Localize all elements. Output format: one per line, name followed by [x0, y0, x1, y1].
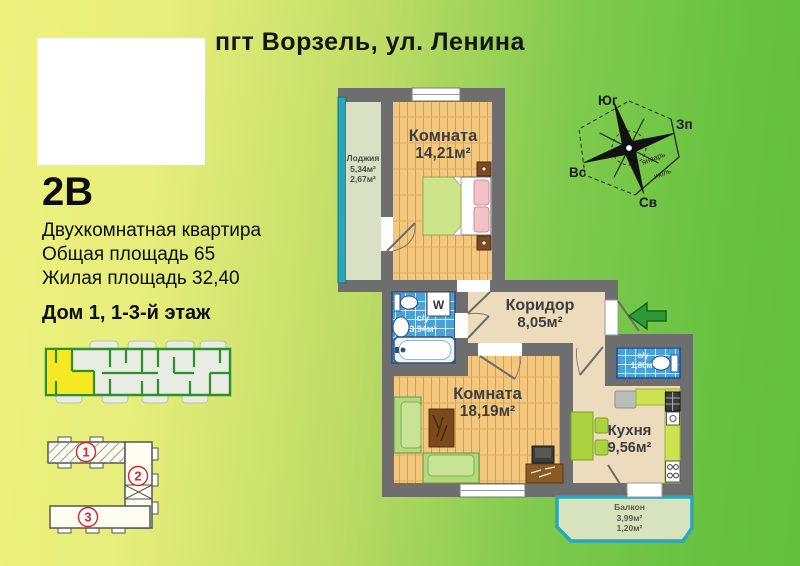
kitchen-label: Кухня 9,56м²	[587, 423, 672, 456]
living-area-label: 18,19м²	[435, 403, 540, 420]
building-3	[50, 506, 150, 533]
sofa-bottom-icon	[423, 453, 479, 483]
total-area: Общая площадь 65	[42, 244, 342, 266]
loggia-area1: 5,34м²	[343, 164, 383, 175]
site-plan: 1 2 3	[42, 430, 167, 560]
tv-icon	[532, 446, 554, 463]
living-label: Комната 18,19м²	[435, 385, 540, 421]
bedroom-label: Комната 14,21м²	[393, 127, 493, 163]
bathroom-area: 3,94м²	[395, 324, 451, 335]
bedroom-name: Комната	[393, 127, 493, 145]
loggia-floor	[346, 102, 381, 280]
bedroom-door-opening	[457, 280, 490, 292]
floor-plan: W	[335, 85, 700, 550]
balcony-area2: 1,20м²	[587, 523, 672, 534]
house-floor-label: Дом 1, 1-3-й этаж	[42, 302, 210, 325]
corridor-name: Коридор	[485, 297, 595, 315]
bedroom-area: 14,21м²	[393, 145, 493, 162]
bathroom-door-opening	[455, 313, 468, 338]
building-strip-schematic	[42, 333, 234, 411]
bathtub-icon	[394, 337, 455, 363]
wc-area: 1,80м²	[619, 361, 667, 371]
building-2-number: 2	[134, 469, 141, 484]
balcony-label: Балкон 3,99м² 1,20м²	[587, 502, 672, 534]
living-area: Жилая площадь 32,40	[42, 268, 342, 290]
balcony-area1: 3,99м²	[587, 513, 672, 524]
kitchen-area: 9,56м²	[587, 440, 672, 456]
building-1-number: 1	[82, 445, 89, 460]
loggia-area2: 2,67м²	[343, 174, 383, 185]
loggia-name: Лоджия	[343, 153, 383, 164]
living-name: Комната	[435, 385, 540, 403]
bathroom-label: с/у 3,94м²	[395, 313, 451, 335]
sofa-left-icon	[394, 397, 421, 453]
entrance-door-opening	[605, 300, 618, 335]
living-door-opening	[478, 343, 522, 356]
apartment-type: Двухкомнатная квартира	[42, 220, 342, 242]
loggia-glazing	[338, 97, 346, 283]
stove-icon	[666, 461, 681, 482]
balcony-door-opening	[627, 483, 662, 497]
loggia-label: Лоджия 5,34м² 2,67м²	[343, 153, 383, 185]
corridor-label: Коридор 8,05м²	[485, 297, 595, 332]
logo-box	[37, 38, 205, 165]
toilet-icon	[394, 294, 400, 311]
cabinet-icon	[615, 391, 636, 408]
tv-stand-icon	[526, 464, 563, 483]
fridge-icon	[666, 392, 681, 411]
wc-label: с/у 1,80м²	[619, 351, 667, 370]
kitchen-name: Кухня	[587, 423, 672, 440]
corridor-area: 8,05м²	[485, 315, 595, 332]
apartment-code: 2В	[42, 170, 93, 215]
washer-label: W	[433, 298, 445, 312]
building-3-number: 3	[84, 510, 91, 525]
flyer-page: { "header": { "title": "пгт Ворзель, ул.…	[0, 0, 800, 566]
wc-name: с/у	[619, 351, 667, 361]
bathroom-name: с/у	[395, 313, 451, 324]
balcony-name: Балкон	[587, 502, 672, 513]
